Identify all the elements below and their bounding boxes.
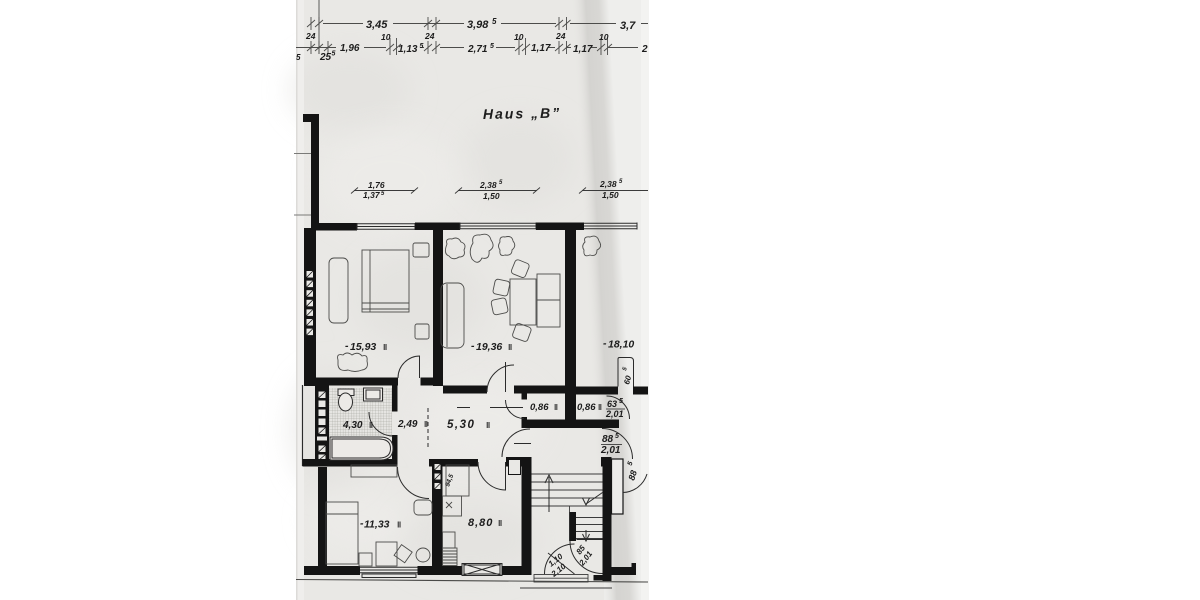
svg-text:1,17: 1,17 (531, 43, 551, 54)
svg-text:24: 24 (305, 31, 316, 41)
svg-text:‖: ‖ (498, 518, 502, 528)
svg-text:5: 5 (490, 43, 494, 50)
svg-text:19,36: 19,36 (476, 341, 502, 353)
svg-text:11,33: 11,33 (364, 519, 390, 531)
svg-text:Haus „B”: Haus „B” (483, 105, 562, 122)
svg-text:10: 10 (381, 32, 391, 42)
svg-text:-: - (360, 518, 364, 530)
svg-text:8,80: 8,80 (468, 517, 493, 529)
svg-text:5: 5 (492, 17, 497, 26)
svg-text:2,38: 2,38 (479, 180, 497, 190)
svg-text:1,50: 1,50 (602, 190, 619, 200)
svg-text:‖: ‖ (369, 421, 373, 430)
svg-text:3,45: 3,45 (366, 19, 388, 31)
svg-text:1,17: 1,17 (573, 44, 593, 55)
svg-text:0,86: 0,86 (530, 402, 549, 413)
svg-text:1,50: 1,50 (483, 191, 500, 201)
svg-text:‖: ‖ (397, 520, 401, 530)
svg-text:1,96: 1,96 (340, 43, 360, 54)
svg-text:24: 24 (424, 31, 435, 41)
svg-text:‖: ‖ (486, 420, 490, 430)
svg-text:5: 5 (420, 43, 424, 50)
svg-text:-: - (345, 340, 349, 352)
svg-text:4,30: 4,30 (342, 420, 363, 431)
svg-text:‖: ‖ (383, 342, 387, 352)
svg-text:1,76: 1,76 (368, 180, 385, 190)
svg-text:‖: ‖ (598, 403, 602, 412)
svg-text:10: 10 (514, 32, 524, 42)
svg-text:-: - (603, 338, 607, 350)
svg-text:24: 24 (555, 31, 566, 41)
svg-text:2,38: 2,38 (599, 179, 617, 189)
svg-text:2,01: 2,01 (605, 409, 624, 419)
svg-text:88: 88 (602, 434, 614, 445)
svg-text:0,86: 0,86 (577, 402, 596, 413)
svg-text:‖: ‖ (554, 403, 558, 412)
svg-text:‖: ‖ (424, 420, 428, 429)
svg-text:18,10: 18,10 (608, 339, 634, 351)
svg-text:5,30: 5,30 (447, 419, 475, 431)
svg-text:5: 5 (332, 51, 336, 58)
svg-text:2,01: 2,01 (600, 445, 621, 456)
svg-text:25: 25 (319, 52, 332, 63)
svg-text:63: 63 (607, 399, 617, 409)
svg-text:1,37: 1,37 (363, 190, 381, 200)
svg-text:5: 5 (296, 53, 301, 62)
svg-text:5: 5 (619, 398, 623, 405)
svg-text:1,13: 1,13 (398, 44, 418, 55)
svg-text:10: 10 (599, 32, 609, 42)
svg-text:5: 5 (615, 433, 619, 440)
svg-text:-: - (471, 340, 475, 352)
svg-text:‖: ‖ (508, 342, 512, 352)
svg-text:3,98: 3,98 (467, 19, 489, 31)
svg-text:2: 2 (641, 44, 648, 55)
svg-text:3,7: 3,7 (620, 20, 636, 32)
svg-text:15,93: 15,93 (350, 341, 376, 353)
svg-text:2,49: 2,49 (397, 419, 418, 430)
svg-text:2,71: 2,71 (467, 44, 488, 55)
